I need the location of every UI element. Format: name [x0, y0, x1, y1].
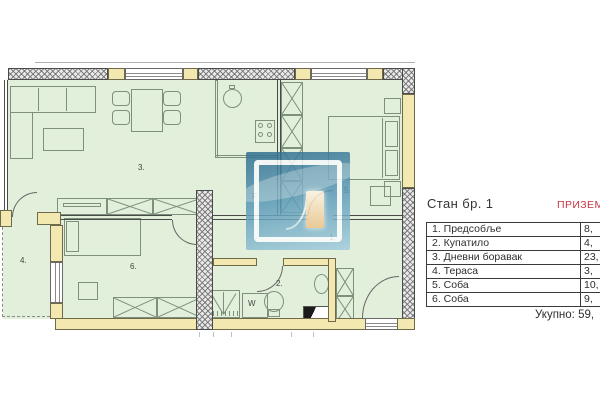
room-area-cell: 3, [581, 265, 593, 278]
stove-burner [267, 123, 272, 128]
wall-yellow [283, 258, 330, 266]
shaft-wall-hatched [196, 190, 213, 330]
watermark-logo [246, 152, 350, 250]
dining-chair [112, 91, 130, 106]
room-area-cell: 9, [581, 293, 593, 306]
wardrobe [281, 115, 303, 148]
wall-hatched [8, 68, 108, 80]
area-panel: Стан бр. 1 ПРИЗЕМЉЕ 1. Предсобље8,2. Куп… [426, 196, 600, 336]
wall-yellow [108, 68, 125, 80]
sofa-chaise [10, 112, 33, 159]
pillow [385, 121, 398, 147]
wall-yellow [402, 94, 415, 188]
bed-line [382, 118, 383, 178]
nightstand [384, 98, 401, 114]
room-area-cell: 8, [581, 223, 593, 236]
toilet-base [268, 309, 280, 317]
table-row: 6. Соба9, [427, 293, 600, 306]
room-label: 2. [276, 279, 283, 288]
table-row: 2. Купатило4, [427, 237, 600, 251]
wall-yellow [183, 68, 198, 80]
wall-yellow [37, 212, 61, 225]
stove-burner [258, 123, 263, 128]
wardrobe [157, 297, 201, 318]
room-name-cell: 4. Тераса [427, 265, 581, 278]
wall-hatched [402, 68, 415, 94]
room-name-cell: 3. Дневни боравак [427, 251, 581, 264]
dimension-tick [213, 332, 214, 337]
wall-yellow [50, 225, 63, 262]
roof-overhang-line [35, 62, 415, 63]
wall-yellow [50, 303, 63, 319]
wardrobe [113, 297, 157, 318]
wardrobe [153, 198, 200, 215]
wall-thin [4, 80, 8, 211]
dining-chair [163, 110, 181, 125]
wall-yellow [397, 318, 415, 330]
table-row: 1. Предсобље8, [427, 223, 600, 237]
window [125, 68, 183, 80]
room-label: 6. [130, 262, 137, 271]
room-name-cell: 2. Купатило [427, 237, 581, 250]
wardrobe [336, 268, 354, 296]
room-area-cell: 10, [581, 279, 599, 292]
room-label: 3. [138, 163, 145, 172]
kitchen-counter [215, 80, 218, 158]
window [50, 262, 63, 303]
sofa-cushion-line [38, 88, 39, 111]
entrance-threshold [365, 318, 398, 330]
room-area-cell: 23, [581, 251, 599, 264]
room-label: 4. [20, 256, 27, 265]
coffee-table [43, 128, 84, 151]
desk [78, 282, 98, 300]
table-row: 5. Соба10, [427, 279, 600, 293]
kitchen-sink [223, 89, 242, 108]
dining-chair [163, 91, 181, 106]
wall-thin [61, 215, 172, 220]
bathroom-sink [314, 274, 329, 294]
sofa [10, 86, 96, 113]
room-name-cell: 6. Соба [427, 293, 581, 306]
pillow [66, 221, 79, 252]
area-table-rows: 1. Предсобље8,2. Купатило4,3. Дневни бор… [427, 223, 600, 306]
dining-table [131, 89, 163, 132]
side-table [370, 186, 391, 206]
stove-burner [258, 132, 263, 137]
shower-grate [209, 311, 238, 316]
wall-hatched [198, 68, 295, 80]
pillow [385, 150, 398, 176]
room-area-cell: 4, [581, 237, 593, 250]
sofa-cushion-line [66, 88, 67, 111]
wall-yellow [367, 68, 383, 80]
wardrobe [107, 198, 153, 215]
dimension-tick [313, 332, 314, 337]
terrace-edge-dashed [2, 316, 55, 318]
sink-tap [229, 85, 235, 89]
watermark-door [306, 191, 324, 228]
stove-burner [267, 132, 272, 137]
floor-label: ПРИЗЕМЉЕ [557, 199, 600, 211]
area-table: 1. Предсобље8,2. Купатило4,3. Дневни бор… [426, 222, 600, 307]
terrace-edge-dashed [2, 227, 4, 317]
wall-yellow [0, 210, 12, 227]
table-row: 4. Тераса3, [427, 265, 600, 279]
apartment-title: Стан бр. 1 [427, 196, 493, 211]
wall-yellow [328, 258, 336, 322]
wall-yellow [213, 258, 257, 266]
shelf-item [63, 203, 101, 207]
window [311, 68, 367, 80]
room-name-cell: 5. Соба [427, 279, 581, 292]
wall-hatched [402, 188, 415, 330]
dining-chair [112, 110, 130, 125]
terrace-floor [3, 218, 50, 319]
table-row: 3. Дневни боравак23, [427, 251, 600, 265]
room-name-cell: 1. Предсобље [427, 223, 581, 236]
wardrobe [281, 82, 303, 115]
total-area: Укупно: 59, [535, 309, 594, 321]
dimension-tick [231, 332, 232, 337]
dimension-tick [291, 332, 292, 337]
dimension-tick [199, 332, 200, 337]
room-label: W [248, 299, 256, 308]
wall-yellow [295, 68, 311, 80]
